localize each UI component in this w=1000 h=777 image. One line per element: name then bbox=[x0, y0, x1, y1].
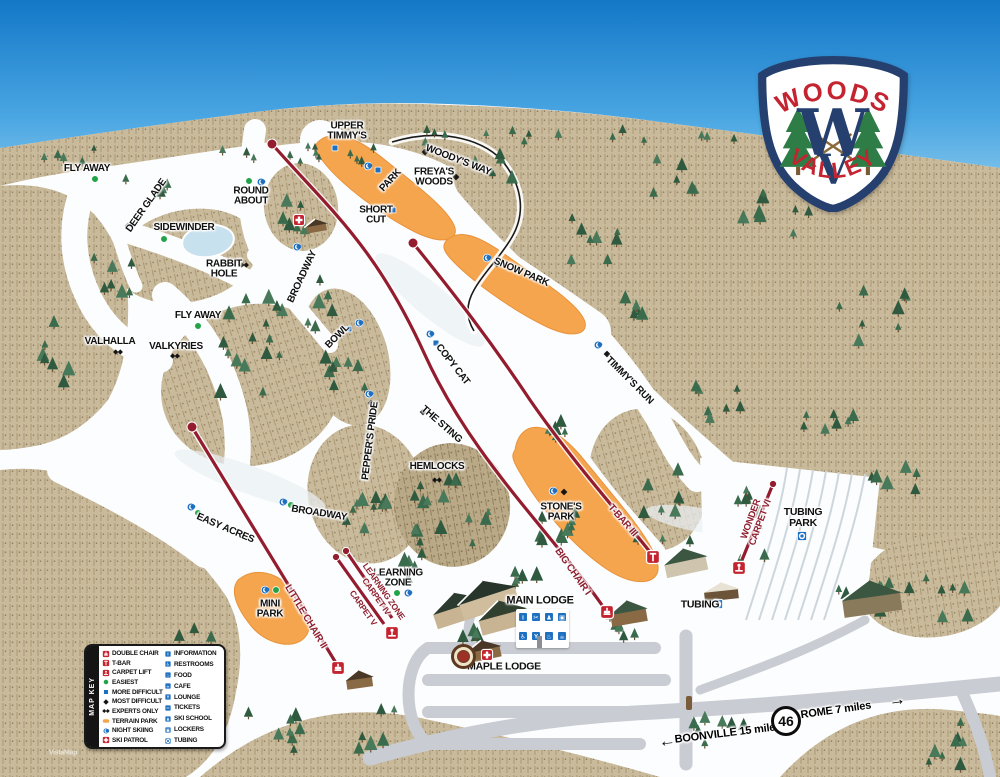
more-difficult-icon bbox=[375, 167, 381, 173]
lockers-icon: ▣ bbox=[164, 726, 172, 734]
legend-label: CAFE bbox=[174, 683, 191, 690]
legend-label: LOUNGE bbox=[174, 694, 200, 701]
night-skiing-icon bbox=[293, 243, 301, 251]
lift-top-terminal-carpet-5 bbox=[342, 547, 349, 554]
night-skiing-icon bbox=[404, 589, 412, 597]
easiest-icon bbox=[394, 590, 401, 597]
svg-text:i: i bbox=[522, 614, 524, 621]
more-difficult-icon bbox=[346, 326, 352, 332]
easiest-icon bbox=[161, 236, 168, 243]
amenity-cafe: ☕ bbox=[556, 629, 568, 647]
legend-item-information: iINFORMATION bbox=[164, 649, 222, 658]
legend-label: TUBING bbox=[174, 737, 197, 744]
legend-item-most-difficult: MOST DIFFICULT bbox=[102, 697, 164, 706]
legend-left-column: DOUBLE CHAIRT-BARCARPET LIFTEASIESTMORE … bbox=[102, 649, 164, 745]
legend-label: NIGHT SKIING bbox=[112, 727, 153, 734]
tubing-icon bbox=[797, 531, 806, 540]
lift-chair-icon bbox=[102, 650, 110, 658]
amenity-food: ♨ bbox=[543, 629, 555, 647]
svg-text:♨: ♨ bbox=[546, 633, 552, 640]
legend-item-cafe: ☕CAFE bbox=[164, 682, 222, 691]
amenity-restrooms: ♿ bbox=[517, 629, 529, 647]
easiest-icon bbox=[195, 510, 202, 517]
tickets-icon: ✂ bbox=[530, 611, 542, 623]
easiest-icon bbox=[92, 176, 99, 183]
sign-post bbox=[537, 636, 542, 648]
more-difficult-icon bbox=[102, 688, 110, 696]
legend-label: T-BAR bbox=[112, 660, 131, 667]
lockers-icon: ▣ bbox=[556, 611, 568, 623]
ski-patrol-icon bbox=[481, 649, 492, 660]
legend-right-column: iINFORMATION♿RESTROOMS♨FOOD☕CAFEYLOUNGE✂… bbox=[164, 649, 222, 745]
svg-text:☕: ☕ bbox=[559, 633, 565, 640]
amenity-lockers: ▣ bbox=[556, 610, 568, 628]
legend-item-lift-chair: DOUBLE CHAIR bbox=[102, 649, 164, 658]
lift-base-t-bar-3 bbox=[647, 551, 660, 564]
legend-item-food: ♨FOOD bbox=[164, 671, 222, 680]
night-skiing-icon bbox=[365, 390, 373, 398]
svg-text:▣: ▣ bbox=[559, 614, 565, 621]
lift-carpet-icon bbox=[102, 669, 110, 677]
svg-text:☕: ☕ bbox=[166, 684, 170, 689]
easiest-icon bbox=[273, 587, 280, 594]
svg-text:♨: ♨ bbox=[166, 673, 170, 678]
experts-only-icon bbox=[102, 707, 110, 715]
map-key-title: MAP KEY bbox=[89, 677, 96, 716]
legend-item-experts-only: EXPERTS ONLY bbox=[102, 707, 164, 716]
legend-item-easiest: EASIEST bbox=[102, 678, 164, 687]
food-icon: ♨ bbox=[543, 630, 555, 642]
svg-text:✂: ✂ bbox=[166, 705, 170, 710]
map-key-title-bar: MAP KEY bbox=[86, 646, 99, 747]
ski-patrol-icon bbox=[293, 214, 304, 225]
trail-map: FLY AWAYDEER GLADEROUND ABOUTSIDEWINDERR… bbox=[0, 0, 1000, 777]
night-skiing-icon bbox=[355, 319, 363, 327]
more-difficult-icon bbox=[433, 340, 439, 346]
tubing-icon bbox=[164, 737, 172, 745]
svg-text:Y: Y bbox=[167, 695, 170, 700]
easiest-icon bbox=[102, 678, 110, 686]
night-skiing-icon bbox=[364, 162, 372, 170]
night-skiing-icon bbox=[483, 254, 491, 262]
legend-label: TERRAIN PARK bbox=[112, 718, 157, 725]
route-46-shield: 46 bbox=[771, 706, 801, 736]
main-lodge-amenities: i✂♟▣♿Y♨☕ bbox=[516, 609, 569, 648]
restrooms-icon: ♿ bbox=[517, 630, 529, 642]
svg-text:i: i bbox=[167, 651, 168, 656]
lift-tbar-icon bbox=[102, 659, 110, 667]
night-skiing-icon bbox=[594, 341, 602, 349]
legend-item-tickets: ✂TICKETS bbox=[164, 703, 222, 712]
legend-item-lift-tbar: T-BAR bbox=[102, 659, 164, 668]
lounge-icon: Y bbox=[164, 693, 172, 701]
more-difficult-icon bbox=[390, 207, 396, 213]
terrain-park-icon bbox=[102, 717, 110, 725]
lift-top-terminal-big-chair-1 bbox=[267, 139, 277, 149]
night-skiing-icon bbox=[426, 330, 434, 338]
lift-top-terminal-t-bar-3 bbox=[408, 238, 418, 248]
maple-lodge-logo bbox=[451, 644, 476, 669]
resort-logo: W V WOODS VALLEY bbox=[750, 56, 916, 212]
ski-school-icon: ♟ bbox=[164, 715, 172, 723]
tubing-icon bbox=[713, 599, 722, 608]
easiest-icon bbox=[288, 502, 295, 509]
svg-text:♟: ♟ bbox=[546, 614, 552, 621]
restrooms-icon: ♿ bbox=[164, 660, 172, 668]
night-skiing-icon bbox=[279, 498, 287, 506]
lift-top-terminal-little-chair-2 bbox=[187, 422, 197, 432]
svg-text:▣: ▣ bbox=[166, 727, 170, 732]
legend-item-tubing: TUBING bbox=[164, 736, 222, 745]
legend-label: FOOD bbox=[174, 672, 192, 679]
legend-item-more-difficult: MORE DIFFICULT bbox=[102, 688, 164, 697]
legend-label: TICKETS bbox=[174, 704, 200, 711]
legend-item-ski-patrol: SKI PATROL bbox=[102, 736, 164, 745]
more-difficult-icon bbox=[332, 145, 338, 151]
legend-label: LOCKERS bbox=[174, 726, 204, 733]
lift-base-little-chair-2 bbox=[332, 662, 345, 675]
night-skiing-icon bbox=[261, 586, 269, 594]
night-skiing-icon bbox=[549, 487, 557, 495]
legend-item-night-skiing: NIGHT SKIING bbox=[102, 726, 164, 735]
map-key-legend: MAP KEY DOUBLE CHAIRT-BARCARPET LIFTEASI… bbox=[84, 644, 226, 749]
legend-label: SKI PATROL bbox=[112, 737, 148, 744]
easiest-icon bbox=[308, 253, 315, 260]
most-difficult-icon bbox=[102, 698, 110, 706]
legend-label: RESTROOMS bbox=[174, 661, 213, 668]
night-skiing-icon bbox=[257, 178, 265, 186]
easiest-icon bbox=[195, 323, 202, 330]
ski-patrol-icon bbox=[102, 736, 110, 744]
amenity-ski-school: ♟ bbox=[543, 610, 555, 628]
legend-label: EXPERTS ONLY bbox=[112, 708, 158, 715]
lift-base-carpet-4 bbox=[386, 627, 399, 640]
night-skiing-icon bbox=[187, 503, 195, 511]
legend-label: MORE DIFFICULT bbox=[112, 689, 163, 696]
legend-label: INFORMATION bbox=[174, 650, 216, 657]
night-skiing-icon bbox=[102, 727, 110, 735]
svg-text:♟: ♟ bbox=[166, 716, 170, 721]
lift-top-terminal-carpet-4 bbox=[332, 553, 339, 560]
tickets-icon: ✂ bbox=[164, 704, 172, 712]
information-icon: i bbox=[164, 650, 172, 658]
legend-label: CARPET LIFT bbox=[112, 669, 151, 676]
food-icon: ♨ bbox=[164, 671, 172, 679]
lift-base-wonder-carpet-6 bbox=[733, 562, 746, 575]
easiest-icon bbox=[246, 178, 253, 185]
cafe-icon: ☕ bbox=[556, 630, 568, 642]
legend-item-lounge: YLOUNGE bbox=[164, 693, 222, 702]
legend-label: DOUBLE CHAIR bbox=[112, 650, 159, 657]
legend-label: SKI SCHOOL bbox=[174, 715, 212, 722]
svg-text:♿: ♿ bbox=[520, 633, 526, 640]
legend-label: MOST DIFFICULT bbox=[112, 698, 162, 705]
legend-item-restrooms: ♿RESTROOMS bbox=[164, 660, 222, 669]
legend-item-ski-school: ♟SKI SCHOOL bbox=[164, 714, 222, 723]
lift-base-big-chair-1 bbox=[601, 606, 614, 619]
information-icon: i bbox=[517, 611, 529, 623]
svg-text:♿: ♿ bbox=[166, 662, 170, 667]
lift-top-terminal-wonder-carpet-6 bbox=[769, 480, 776, 487]
amenity-tickets: ✂ bbox=[530, 610, 542, 628]
amenity-information: i bbox=[517, 610, 529, 628]
route-number: 46 bbox=[778, 713, 794, 729]
legend-item-lift-carpet: CARPET LIFT bbox=[102, 668, 164, 677]
cafe-icon: ☕ bbox=[164, 682, 172, 690]
svg-text:✂: ✂ bbox=[533, 614, 538, 621]
ski-school-icon: ♟ bbox=[543, 611, 555, 623]
legend-item-lockers: ▣LOCKERS bbox=[164, 725, 222, 734]
legend-item-terrain-park: TERRAIN PARK bbox=[102, 717, 164, 726]
legend-label: EASIEST bbox=[112, 679, 138, 686]
